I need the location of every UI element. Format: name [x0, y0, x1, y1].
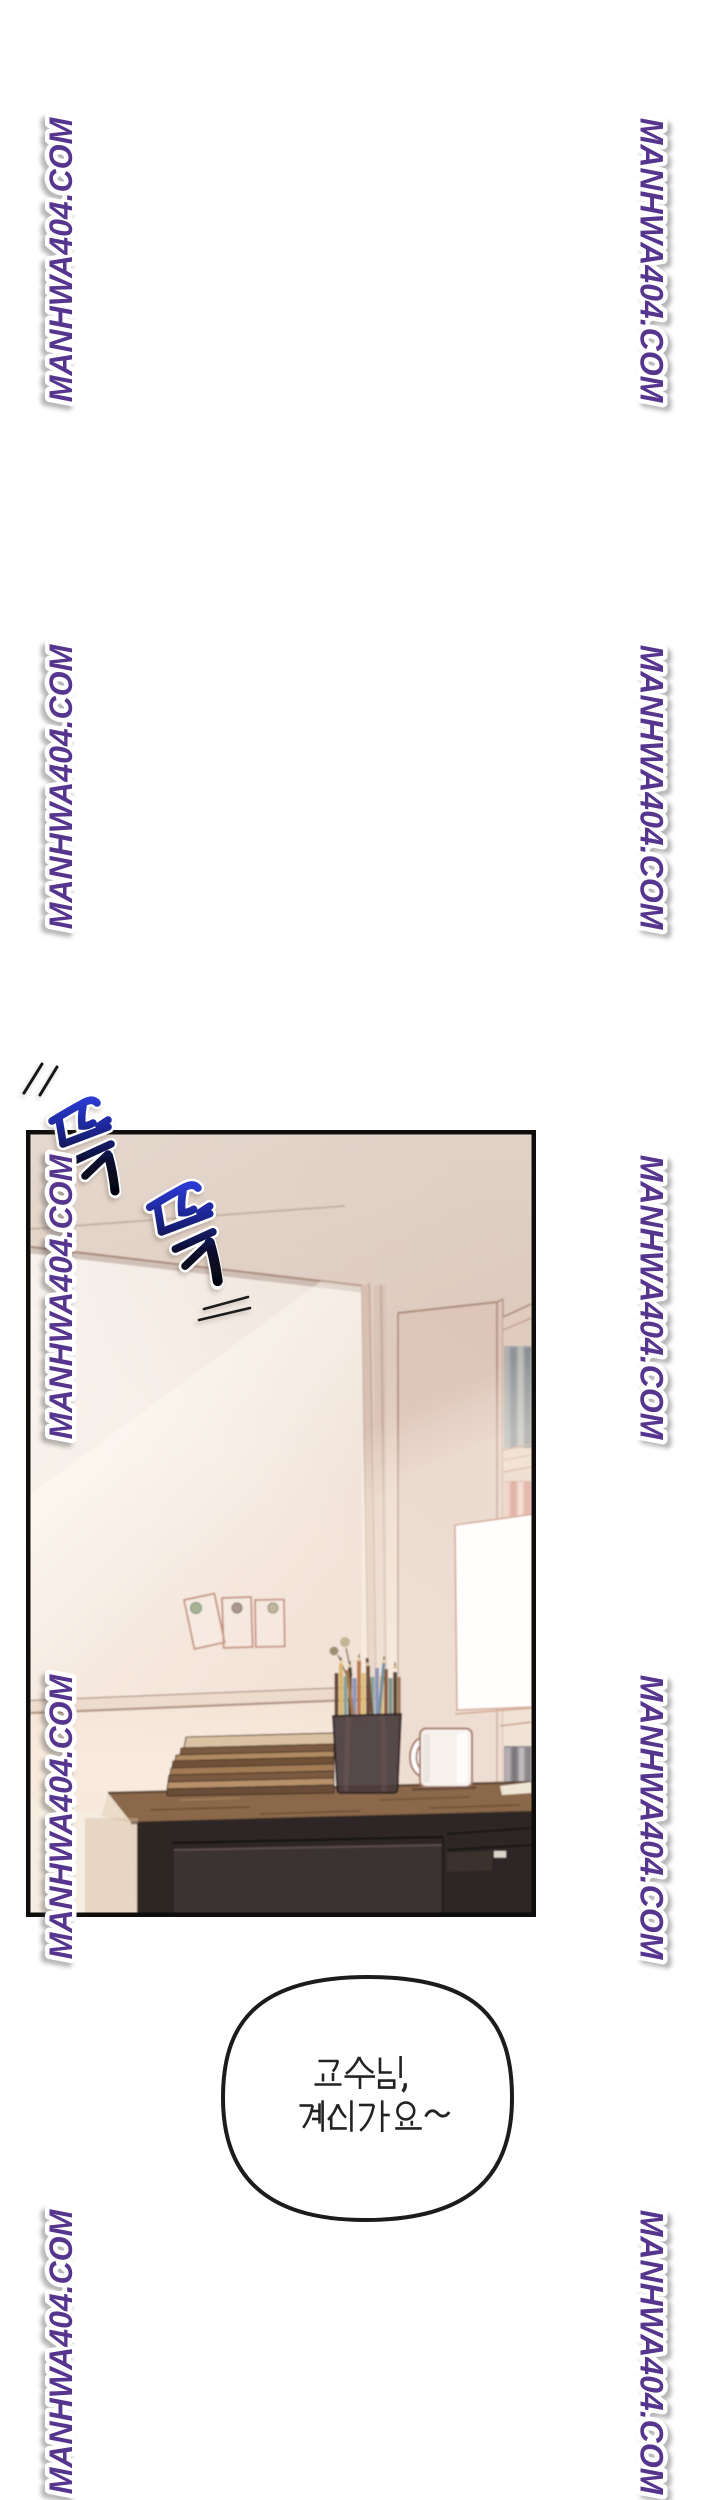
svg-text:MANHWA404.COM: MANHWA404.COM	[43, 1673, 79, 1959]
svg-text:MANHWA404.COM: MANHWA404.COM	[634, 1675, 670, 1961]
svg-text:MANHWA404.COM: MANHWA404.COM	[43, 1153, 79, 1439]
svg-text:MANHWA404.COM: MANHWA404.COM	[43, 116, 79, 402]
svg-text:MANHWA404.COM: MANHWA404.COM	[634, 2210, 670, 2496]
svg-text:MANHWA404.COM: MANHWA404.COM	[43, 2208, 79, 2494]
svg-text:MANHWA404.COM: MANHWA404.COM	[634, 645, 670, 931]
svg-text:MANHWA404.COM: MANHWA404.COM	[634, 1155, 670, 1441]
svg-text:MANHWA404.COM: MANHWA404.COM	[634, 118, 670, 404]
svg-text:MANHWA404.COM: MANHWA404.COM	[43, 643, 79, 929]
